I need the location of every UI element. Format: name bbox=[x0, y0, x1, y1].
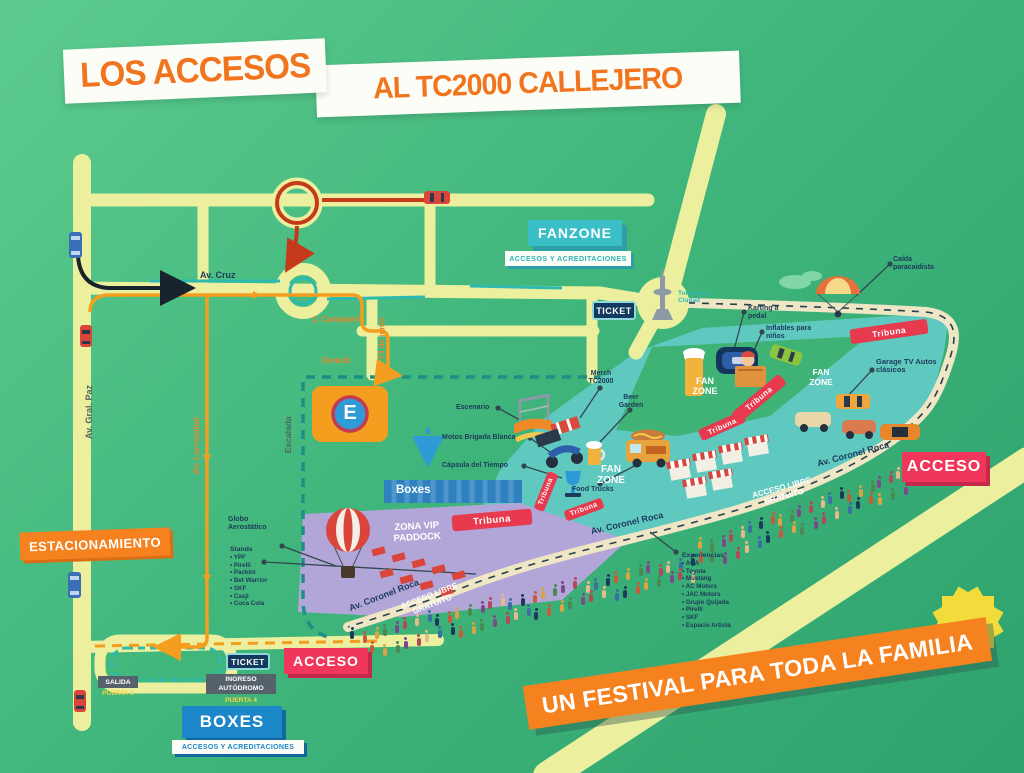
boxes-banner: BOXES bbox=[182, 706, 282, 738]
ticket-badge-north: TICKET bbox=[592, 301, 636, 320]
stands-item: Coca Cola bbox=[230, 600, 300, 608]
street-av-cruz: Av. Cruz bbox=[200, 270, 236, 280]
experiencias-item: JAC Motors bbox=[682, 591, 762, 599]
street-av-larrazabal: Av. Larrazabal bbox=[192, 405, 202, 487]
stands-item: Bet Warrior bbox=[230, 577, 300, 585]
salida-gate-label: PUERTA 3 bbox=[96, 690, 140, 697]
muscle-car-icon bbox=[880, 424, 920, 440]
food-truck-icon bbox=[626, 430, 670, 468]
page-subtitle: AL TC2000 CALLEJERO bbox=[373, 62, 683, 107]
poi-escenario-label: Escenario bbox=[456, 404, 500, 412]
page-title: LOS ACCESOS bbox=[79, 46, 311, 96]
experiencias-item: Grupo Quijada bbox=[682, 599, 762, 607]
poi-capsula-label: Cápsula del Tiempo bbox=[442, 462, 526, 470]
street-j-campbell: J. Campbell bbox=[312, 315, 360, 325]
experiencias-item: AC Motors bbox=[682, 583, 762, 591]
poi-inflables-label: Inflables para niños bbox=[766, 325, 812, 341]
experiencias-item: Pirelli bbox=[682, 606, 762, 614]
parking-e-letter: E bbox=[342, 402, 358, 424]
street-escalada: Escalada bbox=[284, 405, 294, 465]
street-demidi: Demidi bbox=[322, 356, 350, 366]
ingreso-badge: INGRESO AUTÓDROMO bbox=[206, 674, 276, 694]
boxes-strip-label: Boxes bbox=[396, 484, 431, 497]
poi-torre-label: Torre de la Ciudad bbox=[678, 290, 712, 305]
estacionamiento-banner: ESTACIONAMIENTO bbox=[20, 527, 171, 560]
poi-motos-label: Motos Brigada Blanca bbox=[442, 434, 530, 442]
zona-vip-label: ZONA VIP PADDOCK bbox=[385, 520, 448, 544]
salida-badge: SALIDA bbox=[98, 676, 138, 688]
fan-zone-label-1: FAN ZONE bbox=[688, 376, 722, 396]
cloud-icon bbox=[779, 271, 822, 289]
stands-item: YPF bbox=[230, 554, 300, 562]
fan-zone-label-3: FAN ZONE bbox=[592, 464, 630, 486]
poi-globo-label: Globo Aerostático bbox=[228, 516, 286, 532]
bus-icon-south bbox=[68, 572, 81, 598]
street-23-de-junio: 23 de junio bbox=[379, 308, 388, 368]
experiencias-title: Experiencias bbox=[682, 552, 762, 559]
red-car-icon-west bbox=[80, 325, 92, 347]
experiencias-item: Espacio Artista bbox=[682, 622, 762, 630]
experiencias-item: Toyota bbox=[682, 568, 762, 576]
stands-item: Casji bbox=[230, 593, 300, 601]
ticket-badge-south: TICKET bbox=[226, 653, 270, 670]
experiencias-item: ACA bbox=[682, 560, 762, 568]
poi-beer-garden-label: Beer Garden bbox=[610, 394, 652, 410]
stands-item: SKF bbox=[230, 585, 300, 593]
red-car-icon-southwest bbox=[74, 690, 86, 712]
boxes-subtitle-banner: ACCESOS Y ACREDITACIONES bbox=[172, 740, 304, 754]
poi-food-trucks-label: Food Trucks bbox=[572, 486, 620, 494]
stands-item: Pirelli bbox=[230, 562, 300, 570]
poi-merch-label: Merch TC2000 bbox=[578, 370, 624, 386]
title-banner-1: LOS ACCESOS bbox=[63, 38, 327, 103]
fan-zone-label-2: FAN ZONE bbox=[806, 368, 836, 387]
experiencias-list: Experiencias ACA Toyota Mustang AC Motor… bbox=[682, 552, 762, 629]
ingreso-gate-label: PUERTA 4 bbox=[212, 697, 270, 704]
stands-list: Stands YPF Pirelli Packini Bet Warrior S… bbox=[230, 546, 300, 608]
poi-karting-label: Karting a pedal bbox=[748, 305, 786, 321]
red-car-icon-north bbox=[424, 191, 450, 204]
taxi-icon bbox=[836, 394, 870, 409]
fanzone-banner: FANZONE bbox=[528, 220, 622, 246]
tc2000-access-map-poster: LOS ACCESOS AL TC2000 CALLEJERO FANZONE … bbox=[0, 0, 1024, 773]
street-av-gral-paz: Av. Gral. Paz bbox=[84, 381, 94, 443]
experiencias-item: Mustang bbox=[682, 575, 762, 583]
bus-icon-north bbox=[69, 232, 82, 258]
stands-item: Packini bbox=[230, 569, 300, 577]
acceso-east-banner: ACCESO bbox=[902, 452, 986, 482]
stands-title: Stands bbox=[230, 546, 300, 553]
acceso-south-banner: ACCESO bbox=[284, 648, 368, 674]
fanzone-subtitle-banner: ACCESOS Y ACREDITACIONES bbox=[505, 251, 631, 266]
poi-garage-tv-label: Garage TV Autos clásicos bbox=[876, 358, 938, 375]
experiencias-item: SKF bbox=[682, 614, 762, 622]
poi-caida-label: Caída paracaidista bbox=[893, 256, 947, 272]
